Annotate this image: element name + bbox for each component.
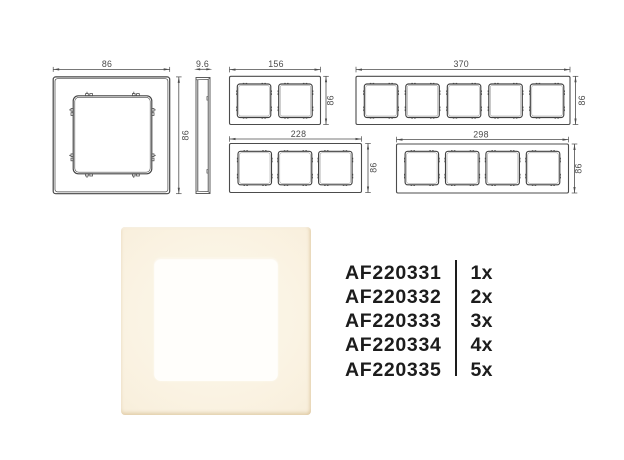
svg-text:228: 228	[291, 129, 306, 139]
svg-text:86: 86	[574, 163, 584, 173]
svg-text:86: 86	[102, 59, 112, 69]
svg-text:86: 86	[369, 162, 379, 172]
svg-text:156: 156	[268, 59, 283, 69]
svg-text:86: 86	[326, 95, 336, 105]
svg-text:298: 298	[473, 129, 488, 139]
svg-text:86: 86	[577, 95, 587, 105]
svg-text:9.6: 9.6	[196, 59, 209, 69]
svg-text:370: 370	[453, 59, 468, 69]
svg-text:86: 86	[180, 130, 190, 140]
